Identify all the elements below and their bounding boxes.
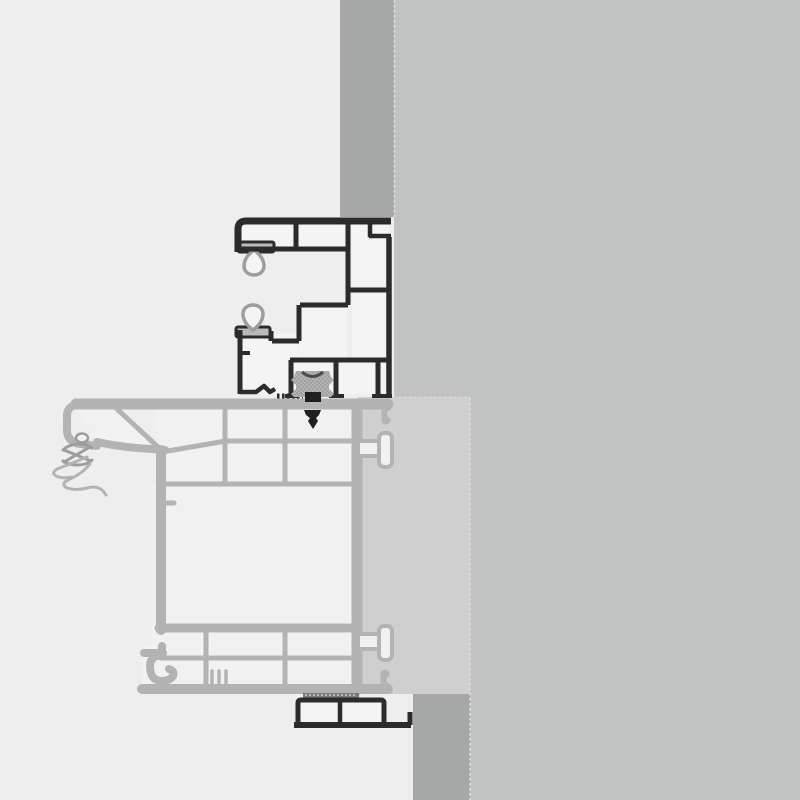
frame-chamber (380, 360, 386, 396)
anchor-cap (379, 626, 392, 660)
plaster-reveal-bottom (413, 694, 470, 800)
frame-chamber (338, 360, 376, 394)
window-section-diagram (0, 0, 800, 800)
bottom-hook-notch (387, 676, 395, 684)
screw-head (305, 392, 321, 402)
frame-chamber (299, 305, 347, 360)
top-hook-notch (387, 410, 396, 419)
frame-chamber (352, 289, 389, 359)
frame-chamber (371, 224, 388, 235)
background-notch (394, 694, 413, 800)
chamber-fill (152, 484, 362, 630)
frame-chamber (297, 223, 349, 249)
drip-nose-hole (76, 434, 88, 443)
chamber-fill (156, 404, 362, 484)
plaster-reveal-top (340, 0, 394, 217)
anchor-cap (379, 433, 392, 467)
diagram-canvas (0, 0, 800, 800)
